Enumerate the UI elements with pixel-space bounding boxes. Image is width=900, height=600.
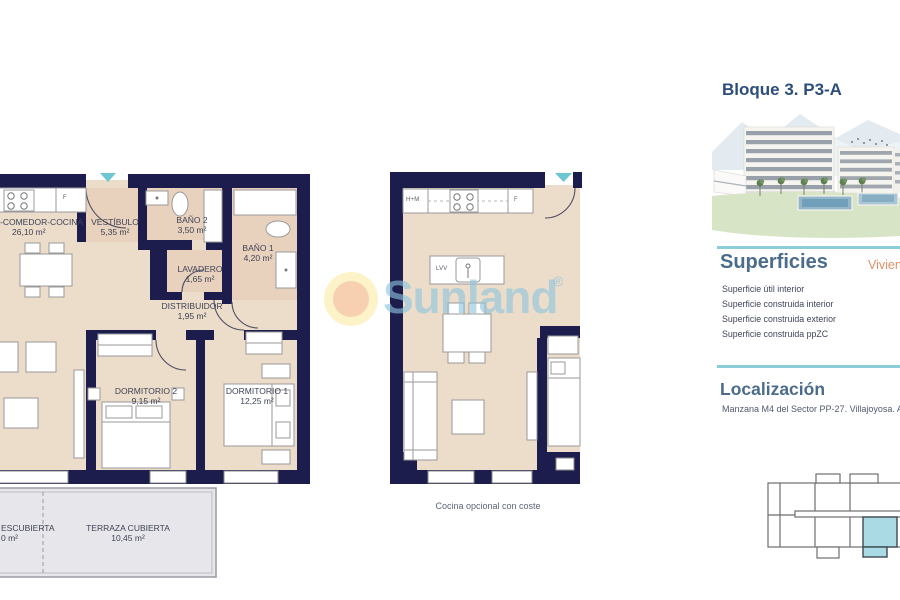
superficie-row: Superficie útil interior [722, 282, 836, 297]
room-label-salon: -COMEDOR-COCINA 26,10 m² [0, 217, 83, 238]
kitchen-footnote: Cocina opcional con coste [435, 501, 540, 511]
room-label-vestibulo: VESTÍBULO 5,35 m² [91, 217, 139, 238]
fridge-label: F [63, 195, 67, 201]
superficies-list: Superficie útil interior Superficie cons… [722, 282, 836, 342]
building-rendering [712, 114, 900, 238]
localizacion-text: Manzana M4 del Sector PP-27. Villajoyosa… [722, 404, 900, 414]
superficie-row: Superficie construida interior [722, 297, 836, 312]
closet-icon [548, 336, 578, 354]
sofa-icon [404, 372, 437, 460]
sunland-logo-icon [324, 272, 378, 326]
room-label-terraza-cubierta: TERRAZA CUBIERTA 10,45 m² [86, 523, 170, 544]
room-label-dormitorio2: DORMITORIO 2 9,15 m² [115, 386, 177, 407]
superficie-row: Superficie construida ppZC [722, 327, 836, 342]
registered-mark-icon: ® [553, 273, 563, 289]
highlighted-unit [863, 517, 897, 557]
localizacion-heading: Localización [720, 379, 825, 400]
column-label-vivienda: Vivienda [868, 258, 900, 272]
floorplan-kitchen [390, 172, 582, 484]
room-label-terraza-descubierta: ESCUBIERTA 0 m² [1, 523, 55, 544]
tall-units-label: H+M [406, 197, 419, 203]
room-label-lavadero: LAVADERO 1,65 m² [177, 264, 222, 285]
room-label-bano1: BAÑO 1 4,20 m² [242, 243, 273, 264]
superficie-row: Superficie construida exterior [722, 312, 836, 327]
watermark-text: Sunland [383, 270, 557, 324]
superficies-heading: Superficies [720, 251, 828, 274]
entry-arrow-icon [555, 173, 572, 182]
bathtub-icon [234, 190, 296, 215]
room-label-distribuidor: DISTRIBUIDOR 1,95 m² [162, 301, 223, 322]
room-label-dormitorio1: DORMITORIO 1 12,25 m² [226, 386, 288, 407]
brochure-page: -COMEDOR-COCINA 26,10 m² VESTÍBULO 5,35 … [0, 0, 900, 600]
unit-title: Bloque 3. P3-A [722, 80, 842, 100]
divider-bottom [717, 365, 900, 368]
toilet-icon [172, 192, 188, 216]
fridge-label: F [514, 197, 518, 203]
toilet-icon [266, 221, 290, 237]
divider-top [717, 246, 900, 249]
site-key-plan [768, 474, 900, 558]
room-label-bano2: BAÑO 2 3,50 m² [176, 215, 207, 236]
